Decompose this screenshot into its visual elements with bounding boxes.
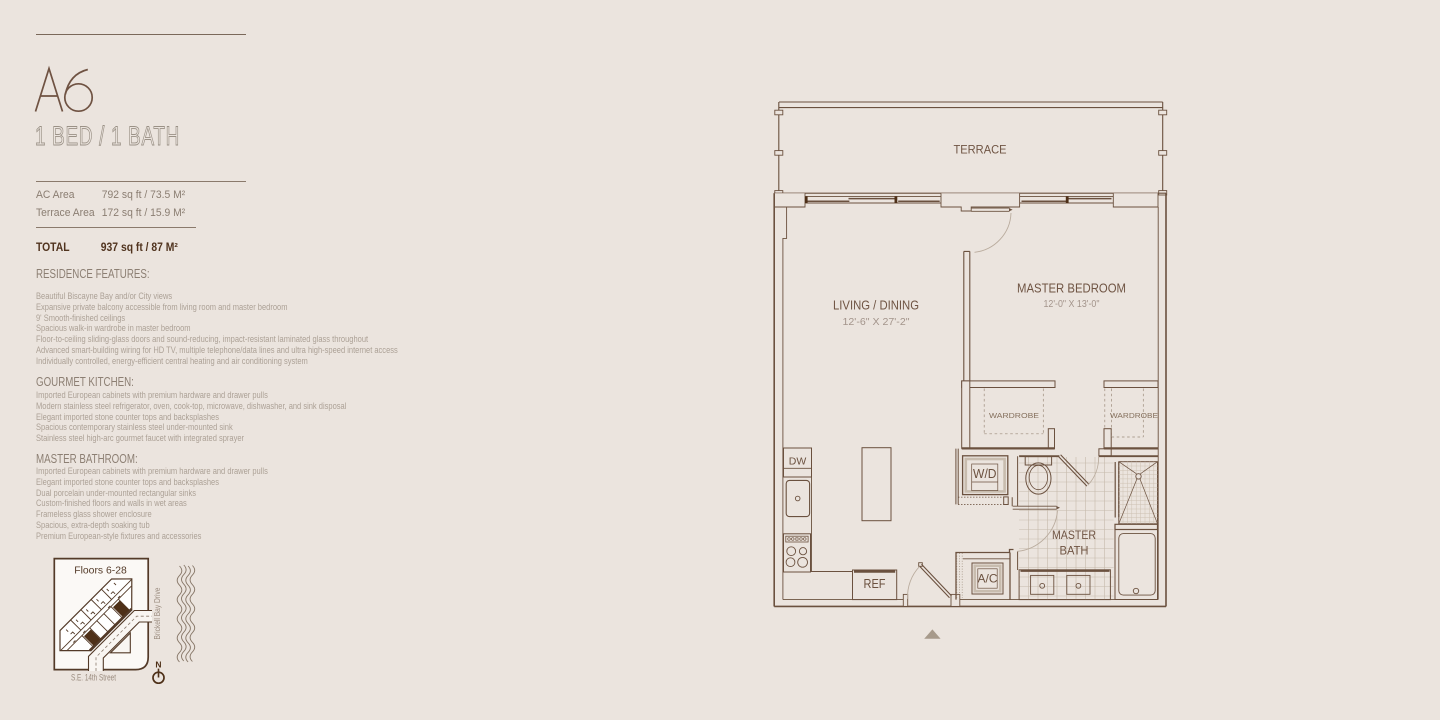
svg-text:A/C: A/C — [978, 572, 998, 586]
svg-text:WARDROBE: WARDROBE — [989, 413, 1039, 420]
svg-text:TERRACE: TERRACE — [954, 143, 1007, 157]
svg-text:MASTER: MASTER — [1052, 530, 1096, 542]
svg-text:DW: DW — [789, 456, 807, 468]
svg-text:Floors 6-28: Floors 6-28 — [74, 566, 127, 577]
svg-text:LIVING / DINING: LIVING / DINING — [833, 298, 919, 313]
svg-text:BATH: BATH — [1060, 546, 1089, 558]
svg-text:N: N — [155, 660, 161, 670]
svg-text:Brickell Bay Drive: Brickell Bay Drive — [152, 587, 162, 639]
svg-text:12'-6" X 27'-2": 12'-6" X 27'-2" — [843, 317, 910, 328]
svg-text:W/D: W/D — [973, 467, 997, 481]
svg-text:REF: REF — [864, 576, 886, 591]
svg-text:MASTER BEDROOM: MASTER BEDROOM — [1017, 281, 1126, 296]
svg-text:S.E. 14th Street: S.E. 14th Street — [71, 673, 116, 683]
svg-text:WARDROBE: WARDROBE — [1110, 413, 1158, 420]
svg-text:12'-0" X 13'-0": 12'-0" X 13'-0" — [1044, 299, 1100, 310]
